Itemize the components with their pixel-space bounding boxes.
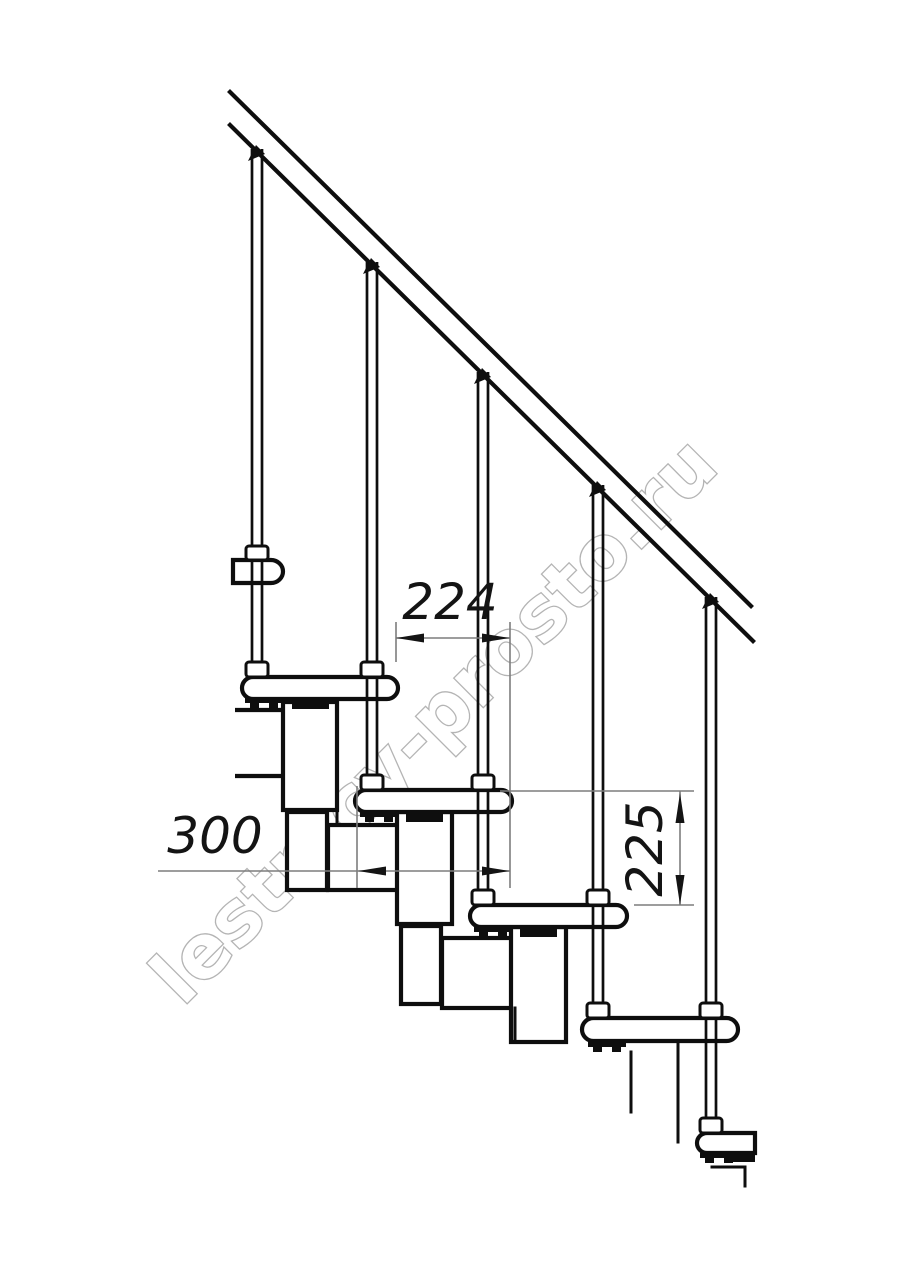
module-lower-block <box>287 812 327 890</box>
baluster-collar <box>587 890 609 905</box>
stair-drawing: lestnicy-prosto.ru <box>0 0 914 1280</box>
baluster-collar <box>472 775 494 790</box>
module-vertical-block <box>283 702 337 810</box>
handrail <box>230 92 753 641</box>
module-body-block <box>328 825 403 890</box>
module-joint-band <box>520 928 557 937</box>
module-joint-band <box>406 813 443 822</box>
baluster-collar <box>700 1118 722 1133</box>
tread <box>242 677 398 699</box>
tread-bottom-partial <box>697 1133 755 1153</box>
tread-bracket-band <box>733 1153 755 1162</box>
tread-bracket <box>245 698 283 708</box>
baluster-collar <box>246 546 268 560</box>
arrowhead-right <box>482 867 510 876</box>
module-vertical-block <box>397 812 452 924</box>
module-lower-block <box>401 926 441 1004</box>
module-vertical-block <box>511 927 566 1042</box>
baluster-collar <box>700 1003 722 1018</box>
baluster-collar <box>246 662 268 677</box>
handrail-top-line <box>230 92 751 606</box>
module-body-block <box>442 938 517 1008</box>
dimension-step-rise: 225 <box>500 791 694 905</box>
tread-bracket <box>700 1153 738 1163</box>
landing-module-block <box>235 710 284 776</box>
baluster-collar <box>472 890 494 905</box>
dimension-value: 224 <box>402 573 497 631</box>
arrowhead-left <box>396 634 424 643</box>
tread-bracket <box>474 927 512 937</box>
handrail-bottom-line <box>230 125 753 641</box>
dimension-value: 225 <box>616 801 674 896</box>
tread-bracket <box>588 1042 626 1052</box>
dimension-value: 300 <box>167 807 262 865</box>
module-cut-line <box>712 1167 745 1186</box>
arrowhead-down <box>676 875 685 905</box>
tread-top-partial <box>233 560 283 583</box>
module-joint-band <box>292 700 329 709</box>
technical-drawing-canvas: lestnicy-prosto.ru <box>0 0 914 1280</box>
arrowhead-up <box>676 793 685 823</box>
tread <box>582 1018 738 1041</box>
baluster-collar <box>361 662 383 677</box>
baluster-collar <box>587 1003 609 1018</box>
baluster-collar <box>361 775 383 790</box>
